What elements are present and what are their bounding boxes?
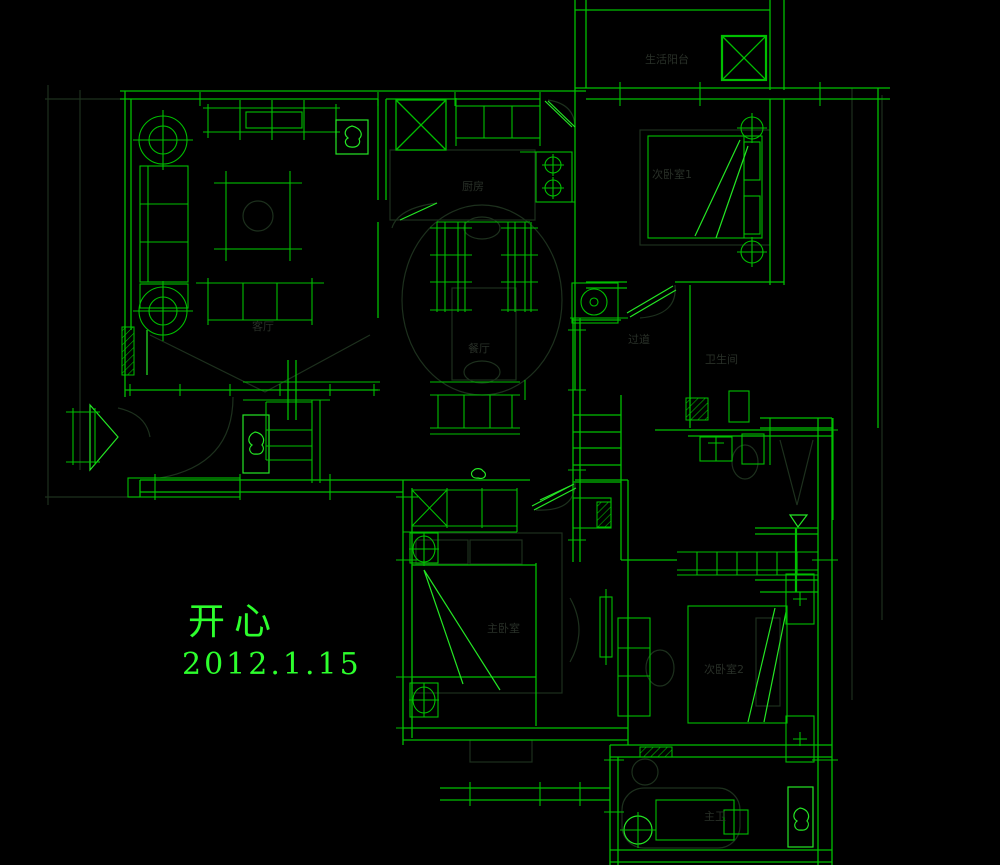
entry-threshold: [128, 478, 240, 497]
entry-door-arrow: [90, 405, 118, 470]
desk: [618, 618, 650, 716]
basin: [729, 391, 749, 422]
bath-partitions: [770, 418, 833, 520]
dining-chair-rail: [501, 222, 538, 312]
bathroom-group: [700, 391, 833, 527]
nightstand: [786, 716, 814, 762]
nightstand-speaker: [409, 683, 439, 717]
cad-viewport: 客厅厨房餐厅生活阳台次卧室1过道卫生间主卧室次卧室2主卫 开心 2012.1.1…: [0, 0, 1000, 865]
window-hatch-bath: [686, 398, 708, 420]
window-hatch-living: [122, 327, 134, 375]
nightstand: [786, 574, 814, 624]
drain-symbol: [790, 515, 807, 527]
shoe-cabinet-plant: [243, 415, 269, 473]
dresser-mirror: [600, 589, 612, 665]
room-label-bedroom-2: 次卧室2: [704, 662, 744, 676]
bedroom2-group: [618, 552, 818, 762]
entry-dimension: [66, 408, 100, 465]
washing-machine: [570, 283, 628, 323]
hall-cabinet: [243, 382, 380, 483]
bed: [648, 136, 762, 238]
room-labels: 客厅厨房餐厅生活阳台次卧室1过道卫生间主卧室次卧室2主卫: [252, 52, 744, 823]
bedroom1-group: [648, 113, 767, 267]
room-label-living-room: 客厅: [252, 319, 274, 333]
sofa-two-seat: [196, 278, 324, 325]
nightstand-speaker: [409, 532, 439, 566]
wardrobe: [403, 488, 517, 532]
column-x-box: [396, 100, 446, 150]
tv-cabinet: [203, 100, 340, 140]
wardrobe-band: [677, 552, 818, 575]
balcony-door-leaf: [545, 101, 575, 127]
room-label-dining-room: 餐厅: [468, 341, 490, 355]
bathtub: [656, 800, 748, 840]
room-label-bathroom-1: 卫生间: [705, 352, 738, 366]
window-hatch-corridor: [597, 502, 611, 527]
room-label-corridor: 过道: [628, 332, 650, 346]
plant-icon: [788, 787, 813, 847]
plant-icon: [471, 469, 485, 479]
room-label-master-bath: 主卫: [704, 810, 726, 823]
room-label-kitchen: 厨房: [462, 180, 484, 193]
column-x-box: [722, 36, 766, 80]
speaker-icon: [133, 110, 193, 170]
room-label-utility-balcony: 生活阳台: [645, 52, 689, 66]
plant-icon: [336, 120, 368, 154]
drawing-title: 开心: [188, 600, 280, 643]
master-door-leaf: [532, 484, 576, 510]
bath-door-leaf: [627, 286, 676, 317]
kitchen-cabinet: [456, 98, 540, 146]
stove-burners: [520, 152, 575, 202]
floor-drain-icon: [620, 812, 656, 848]
toilet-cistern: [700, 437, 732, 461]
drawing-date: 2012.1.15: [182, 647, 362, 682]
room-label-bedroom-1: 次卧室1: [652, 167, 692, 181]
window-hatch-master-bath: [640, 747, 672, 757]
bed: [412, 563, 536, 726]
speaker-icon: [133, 281, 193, 341]
speaker-icon: [737, 237, 767, 267]
living-room-group: [133, 100, 368, 341]
kitchen-group: [396, 98, 575, 220]
floorplan-canvas: 客厅厨房餐厅生活阳台次卧室1过道卫生间主卧室次卧室2主卫 开心 2012.1.1…: [0, 0, 1000, 865]
dim-underlay: [45, 85, 882, 848]
balcony-group: [722, 36, 766, 80]
room-label-master-bedroom: 主卧室: [487, 621, 520, 635]
walls: [120, 0, 890, 865]
coffee-table: [214, 171, 302, 261]
